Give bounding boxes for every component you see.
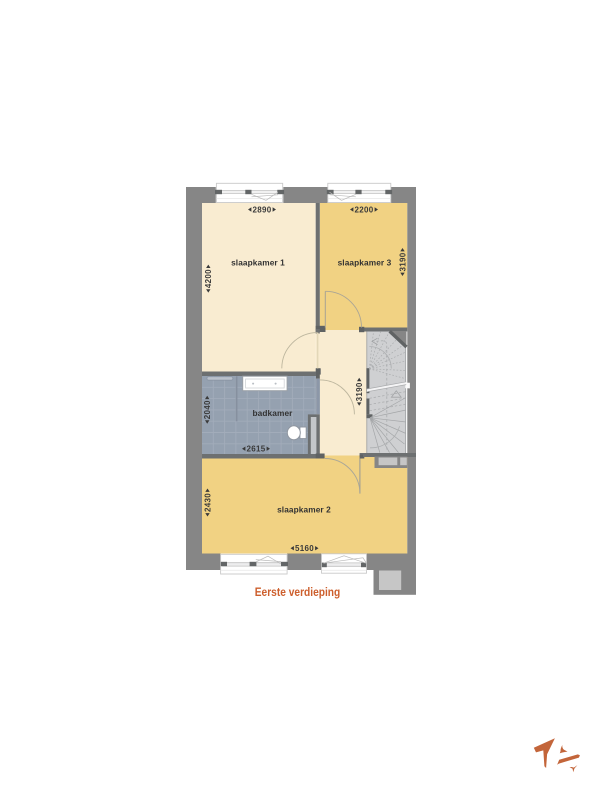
svg-text:badkamer: badkamer <box>253 408 294 418</box>
svg-text:slaapkamer 3: slaapkamer 3 <box>338 258 392 268</box>
svg-text:slaapkamer 2: slaapkamer 2 <box>277 504 331 514</box>
svg-text:3190: 3190 <box>355 382 364 401</box>
svg-text:2890: 2890 <box>253 205 272 214</box>
svg-text:2200: 2200 <box>355 205 374 214</box>
svg-text:Eerste verdieping: Eerste verdieping <box>255 585 341 599</box>
svg-text:3190: 3190 <box>398 252 407 271</box>
svg-text:2040: 2040 <box>203 400 212 419</box>
svg-text:2430: 2430 <box>203 493 212 512</box>
svg-text:2615: 2615 <box>247 445 266 454</box>
svg-text:slaapkamer 1: slaapkamer 1 <box>231 258 285 268</box>
svg-text:5160: 5160 <box>295 544 314 553</box>
svg-text:4200: 4200 <box>204 269 213 288</box>
